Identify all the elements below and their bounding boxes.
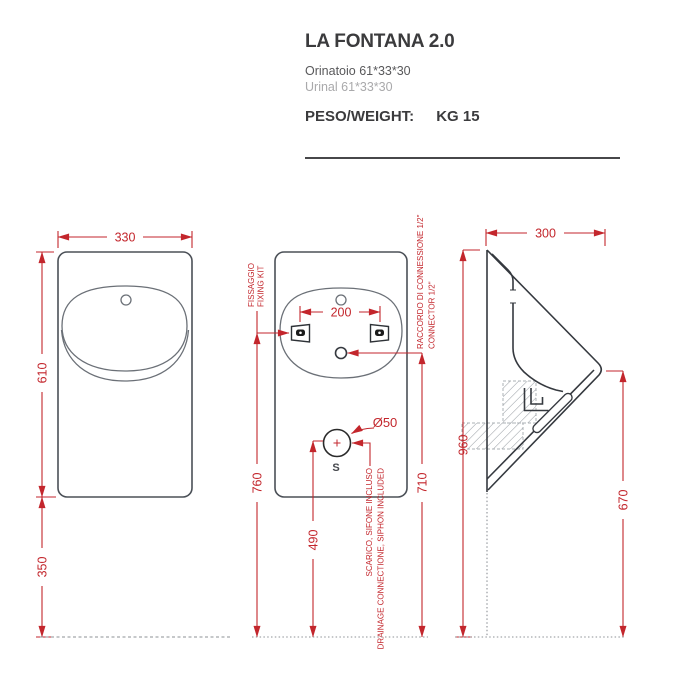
- rear-view: 200 FISSAGGIO FIXING KIT 760 S Ø50: [247, 214, 437, 649]
- front-floor-clearance-dimension: 350: [36, 497, 53, 637]
- side-depth-dimension: 300: [486, 227, 605, 247]
- side-height-label: 960: [457, 435, 471, 456]
- technical-drawing: 330 610 350: [0, 0, 700, 700]
- side-lip-height-dimension: 670: [606, 371, 631, 637]
- fixing-height-dimension: 760: [251, 333, 265, 637]
- connector-height-dimension: 710: [416, 353, 430, 637]
- wall-section-hatch-lower: [462, 423, 523, 449]
- connector-label-it: RACCORDO DI CONNESSIONE 1/2": [416, 214, 425, 349]
- side-lip-height-label: 670: [617, 490, 631, 511]
- front-width-dimension: 330: [58, 230, 192, 248]
- inlet-gap-ticks: [510, 290, 516, 303]
- rear-body-outline: [275, 252, 407, 497]
- fixing-label-en: FIXING KIT: [257, 266, 266, 307]
- connector-height-label: 710: [416, 473, 430, 494]
- fixing-bracket-right: [371, 325, 389, 343]
- drain-label-en: DRAINAGE CONNECTIONE, SIPHON INCLUDED: [377, 468, 386, 650]
- front-clearance-label: 350: [36, 557, 50, 578]
- drain-symbol: S: [332, 462, 339, 474]
- side-profile-outline: [487, 250, 601, 490]
- front-body-outline: [58, 252, 192, 497]
- fixing-label-it: FISSAGGIO: [247, 263, 256, 307]
- fixing-spacing-label: 200: [331, 306, 352, 320]
- front-height-label: 610: [36, 363, 50, 384]
- side-depth-label: 300: [535, 227, 556, 241]
- drain-diameter-label: Ø50: [373, 415, 398, 430]
- drain-label-it: SCARICO, SIFONE INCLUSO: [365, 468, 374, 576]
- side-basin-back-line: [492, 254, 563, 392]
- connector-label-en: CONNECTOR 1/2": [428, 281, 437, 349]
- side-view: 300 960 670: [455, 227, 631, 638]
- fixing-bracket-left: [292, 325, 310, 343]
- front-height-dimension: 610: [36, 252, 57, 497]
- drain-height-label: 490: [307, 530, 321, 551]
- front-view: 330 610 350: [36, 230, 233, 637]
- front-width-label: 330: [115, 231, 136, 245]
- fixing-height-label: 760: [251, 473, 265, 494]
- drawing-sheet: LA FONTANA 2.0 Orinatoio 61*33*30 Urinal…: [0, 0, 700, 700]
